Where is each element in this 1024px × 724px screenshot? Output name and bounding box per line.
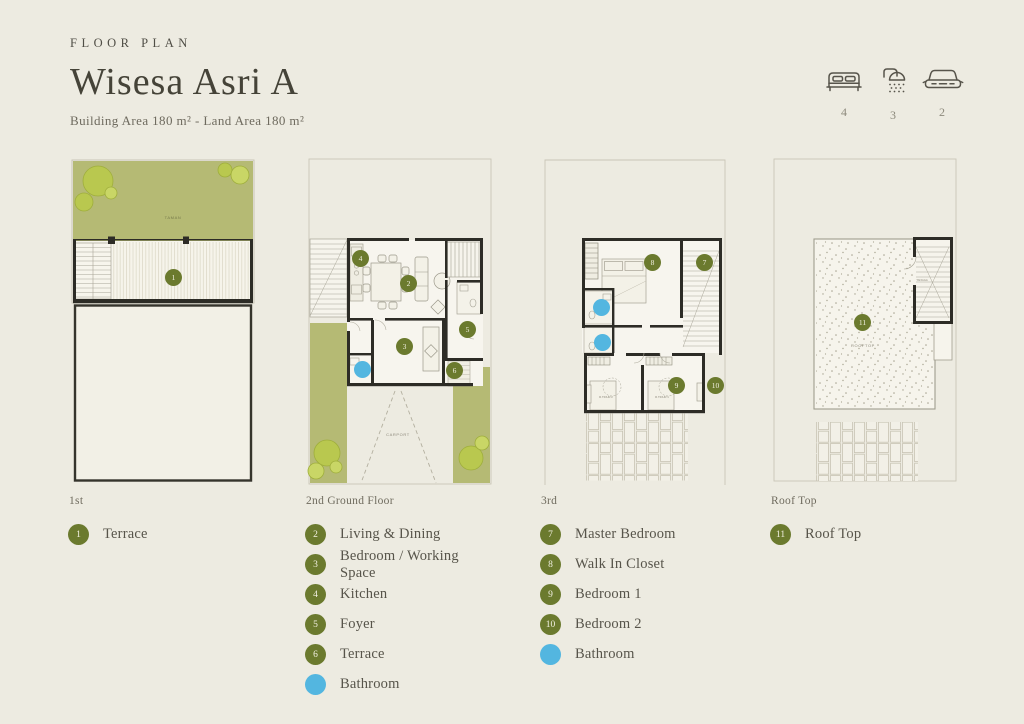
floor-plan-3rd-drawing: R.TIDUR 2 R.TIDUR 1 (540, 155, 730, 488)
floor-caption-1st: 1st (69, 495, 258, 507)
stat-bedrooms: 4 (824, 66, 864, 123)
bedroom1-label: R.TIDUR 1 (655, 395, 669, 399)
bathroom-marker (354, 361, 371, 378)
car-count: 2 (922, 105, 962, 120)
legend-label: Bathroom (340, 676, 400, 693)
bathroom-marker (593, 299, 610, 316)
bathroom-count: 3 (873, 108, 913, 123)
bed-icon (824, 66, 864, 93)
carport-label: CARPORT (386, 432, 410, 437)
eyebrow-label: FLOOR PLAN (70, 36, 304, 51)
legend-number: 2 (305, 524, 326, 545)
legend-3rd: 7 Master Bedroom 8 Walk In Closet 9 Bedr… (540, 524, 730, 665)
amenity-stats: 4 3 (824, 66, 962, 123)
column-3rd-floor: R.TIDUR 2 R.TIDUR 1 8 (540, 155, 730, 665)
legend-item: 1 Terrace (68, 524, 258, 545)
legend-label: Bedroom 2 (575, 616, 642, 633)
room-marker-bedroom-working: 3 (396, 338, 413, 355)
legend-item: Bathroom (305, 674, 495, 695)
column-2nd-floor: CARPORT 4 2 5 3 6 2nd Ground Floor 2 Liv… (305, 155, 495, 695)
legend-1st: 1 Terrace (68, 524, 258, 545)
floor-plan-rooftop: TANGGA ROOFTOP 11 (770, 155, 960, 488)
floor-plan-1st-drawing: TAMAN (68, 155, 258, 488)
room-marker-rooftop: 11 (854, 314, 871, 331)
room-marker-bedroom-2: 10 (707, 377, 724, 394)
legend-number: 3 (305, 554, 326, 575)
floor-caption-rooftop: Roof Top (771, 495, 960, 507)
legend-item: 4 Kitchen (305, 584, 495, 605)
room-marker-bedroom-1: 9 (668, 377, 685, 394)
garden-label: TAMAN (165, 215, 182, 220)
legend-number: 8 (540, 554, 561, 575)
legend-label: Walk In Closet (575, 556, 664, 573)
legend-item: 7 Master Bedroom (540, 524, 730, 545)
rooftop-label: ROOFTOP (851, 343, 875, 348)
area-subtitle: Building Area 180 m² - Land Area 180 m² (70, 113, 304, 129)
room-marker-master-bedroom: 7 (696, 254, 713, 271)
legend-label: Roof Top (805, 526, 861, 543)
floor-caption-3rd: 3rd (541, 495, 730, 507)
legend-item: 6 Terrace (305, 644, 495, 665)
room-marker-walk-in-closet: 8 (644, 254, 661, 271)
legend-label: Living & Dining (340, 526, 440, 543)
legend-label: Master Bedroom (575, 526, 676, 543)
header: FLOOR PLAN Wisesa Asri A Building Area 1… (70, 36, 304, 129)
legend-item: 10 Bedroom 2 (540, 614, 730, 635)
column-roof-top: TANGGA ROOFTOP 11 Roof Top 11 Roof Top (770, 155, 960, 545)
stat-bathrooms: 3 (873, 66, 913, 123)
legend-number: 9 (540, 584, 561, 605)
legend-label: Terrace (103, 526, 148, 543)
legend-number: 11 (770, 524, 791, 545)
column-1st-floor: TAMAN 1 1st 1 Terrace (68, 155, 258, 545)
bathroom-marker (594, 334, 611, 351)
legend-item: Bathroom (540, 644, 730, 665)
car-icon (922, 66, 962, 93)
stat-cars: 2 (922, 66, 962, 123)
room-marker-foyer: 5 (459, 321, 476, 338)
room-marker-terrace-2nd: 6 (446, 362, 463, 379)
legend-bathroom-dot (540, 644, 561, 665)
legend-number: 10 (540, 614, 561, 635)
legend-bathroom-dot (305, 674, 326, 695)
legend-number: 6 (305, 644, 326, 665)
stairs-label: TANGGA (916, 278, 928, 282)
room-marker-living-dining: 2 (400, 275, 417, 292)
legend-label: Bathroom (575, 646, 635, 663)
legend-item: 11 Roof Top (770, 524, 960, 545)
legend-item: 8 Walk In Closet (540, 554, 730, 575)
room-marker-terrace: 1 (165, 269, 182, 286)
legend-number: 7 (540, 524, 561, 545)
legend-item: 5 Foyer (305, 614, 495, 635)
legend-item: 2 Living & Dining (305, 524, 495, 545)
room-marker-kitchen: 4 (352, 250, 369, 267)
legend-label: Bedroom / Working Space (340, 548, 495, 582)
legend-label: Bedroom 1 (575, 586, 642, 603)
floor-plan-3rd: R.TIDUR 2 R.TIDUR 1 8 (540, 155, 730, 488)
legend-label: Terrace (340, 646, 385, 663)
legend-rooftop: 11 Roof Top (770, 524, 960, 545)
shower-icon (873, 66, 913, 96)
legend-label: Foyer (340, 616, 375, 633)
legend-number: 5 (305, 614, 326, 635)
bedroom-count: 4 (824, 105, 864, 120)
legend-item: 9 Bedroom 1 (540, 584, 730, 605)
floor-plan-1st: TAMAN 1 (68, 155, 258, 488)
legend-label: Kitchen (340, 586, 387, 603)
bedroom2-label: R.TIDUR 2 (599, 395, 613, 399)
legend-item: 3 Bedroom / Working Space (305, 554, 495, 575)
floor-plan-page: FLOOR PLAN Wisesa Asri A Building Area 1… (0, 0, 1024, 724)
legend-number: 1 (68, 524, 89, 545)
floor-plan-2nd: CARPORT 4 2 5 3 6 (305, 155, 495, 488)
legend-2nd: 2 Living & Dining 3 Bedroom / Working Sp… (305, 524, 495, 695)
floor-caption-2nd: 2nd Ground Floor (306, 495, 495, 507)
legend-number: 4 (305, 584, 326, 605)
page-title: Wisesa Asri A (70, 60, 304, 104)
